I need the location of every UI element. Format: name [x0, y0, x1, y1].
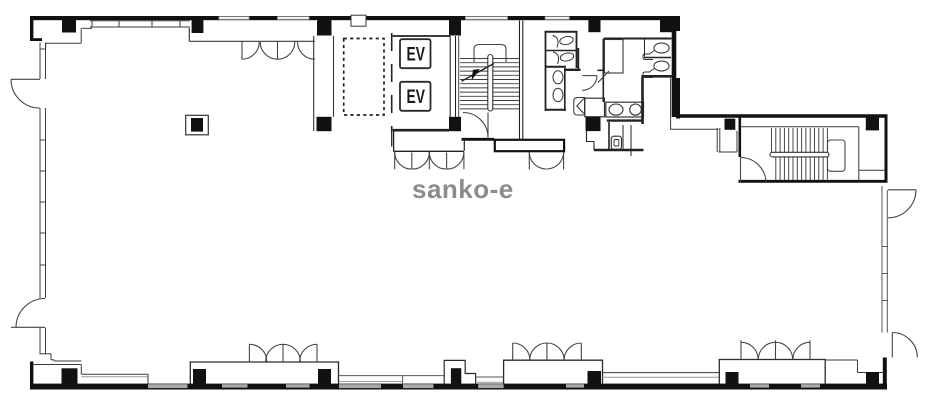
svg-text:EV: EV: [407, 45, 426, 66]
svg-text:EV: EV: [407, 87, 426, 108]
svg-text:sanko-e: sanko-e: [412, 174, 514, 204]
